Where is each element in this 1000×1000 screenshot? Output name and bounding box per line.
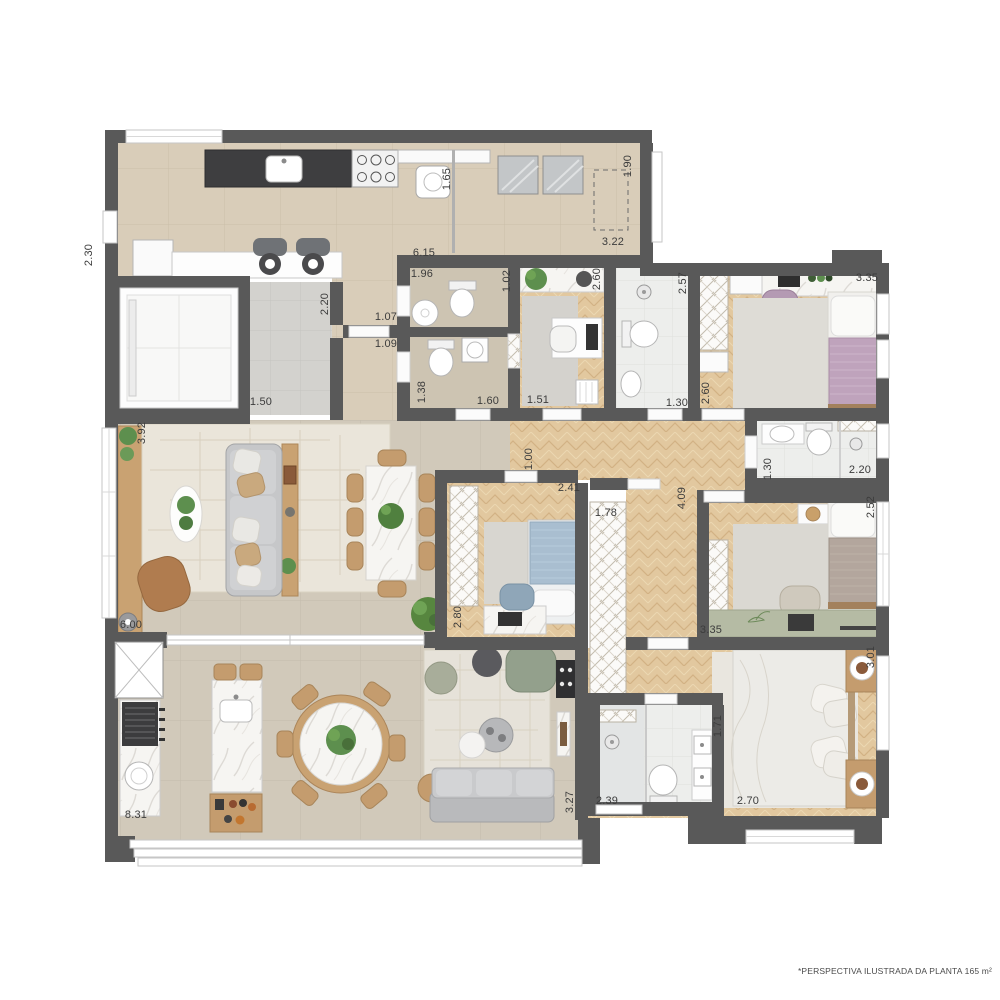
- bath-social-door: [397, 352, 410, 382]
- dim-entry-door-a: 1.07: [375, 311, 397, 323]
- window-master-right: [877, 656, 889, 750]
- stool: [240, 664, 262, 680]
- desk-chair: [500, 584, 534, 610]
- shower-head: [850, 438, 862, 450]
- dim-bedroom-mid-door: 1.00: [523, 448, 535, 470]
- wall-master-bottom-stub: [688, 830, 746, 844]
- pouf-sage: [425, 662, 457, 694]
- bottle: [239, 799, 247, 807]
- footer-disclaimer: *PERSPECTIVA ILUSTRADA DA PLANTA 165 m²: [798, 966, 992, 976]
- plant: [120, 447, 134, 461]
- plant: [179, 516, 193, 530]
- bed-footboard: [828, 602, 878, 609]
- grill-knob: [159, 718, 165, 721]
- toilet: [450, 289, 474, 317]
- oval-sink: [621, 371, 641, 397]
- faucet: [700, 775, 704, 779]
- wall-master-bottom: [688, 816, 882, 830]
- wall-bedmid-left: [435, 483, 447, 650]
- dim-laundry-depth: 1.90: [622, 155, 634, 177]
- side-table-decor: [486, 727, 494, 735]
- grill-knob: [159, 708, 165, 711]
- plant-leaf: [413, 601, 427, 615]
- sofa-cushion: [436, 770, 472, 796]
- fireplace-knob: [568, 682, 572, 686]
- dim-bedroom-mid-width: 2.41: [558, 482, 580, 494]
- dim-kitchen-partition: 1.65: [441, 168, 453, 190]
- elevator-door: [129, 300, 136, 396]
- faucet: [700, 743, 704, 747]
- wall-corridor-stub: [590, 478, 628, 490]
- dim-bath-office-width: 1.30: [666, 397, 688, 409]
- wall-bedroom2-left: [697, 503, 709, 637]
- master-door: [648, 638, 688, 649]
- firewood: [560, 722, 567, 746]
- fireplace-knob: [560, 682, 564, 686]
- fireplace-knob: [568, 668, 572, 672]
- wall-foyer-left-b: [330, 338, 343, 420]
- laptop: [586, 324, 598, 350]
- decor-bowl: [576, 271, 592, 287]
- side-table-white: [459, 732, 485, 758]
- corridor-wardrobe: [590, 502, 626, 705]
- kitchen-laundry-partition: [452, 150, 455, 253]
- dim-bedroom1-depth: 2.60: [700, 382, 712, 404]
- corridor-opening: [628, 479, 660, 489]
- double-bed: [733, 650, 853, 806]
- books: [576, 380, 598, 404]
- bottle: [236, 816, 245, 825]
- side-table-decor: [498, 734, 506, 742]
- book-row: [840, 626, 878, 630]
- office-door: [543, 409, 581, 420]
- dim-tv-room-depth: 3.27: [564, 791, 576, 813]
- dim-living-left-depth: 3.92: [136, 422, 148, 444]
- plant: [177, 496, 195, 514]
- grill-knob: [159, 738, 165, 741]
- window-bedroom1-a: [877, 294, 889, 334]
- faucet: [234, 695, 239, 700]
- bottle-box: [215, 799, 224, 810]
- kitchen-faucet: [282, 159, 287, 164]
- dim-office-depth: 2.60: [591, 268, 603, 290]
- plant-leaf: [342, 738, 354, 750]
- dim-master-width: 2.70: [737, 795, 759, 807]
- dim-bath-social-width: 1.60: [477, 395, 499, 407]
- dim-bath-bedroom1-depth: 2.20: [849, 464, 871, 476]
- blue-blanket: [530, 522, 578, 584]
- lamp-base: [856, 778, 868, 790]
- dim-bath-social-depth: 1.38: [416, 381, 428, 403]
- dim-entry-door-b: 1.09: [375, 338, 397, 350]
- window-bedroom1-b: [877, 340, 889, 378]
- wall-laundry-right: [640, 143, 653, 263]
- dim-kitchen-width: 6.15: [413, 247, 435, 259]
- bottle: [224, 815, 232, 823]
- wall-living-terrace-pillar: [424, 632, 447, 648]
- wardrobe: [697, 272, 728, 350]
- round-sink: [125, 762, 153, 790]
- bedroom-mid-door: [505, 471, 537, 482]
- laptop: [498, 612, 522, 626]
- wall-office-bath-div: [604, 263, 616, 420]
- floor-plan-drawing: [0, 0, 1000, 1000]
- plant-leaf: [381, 505, 391, 515]
- sofa-cushion: [476, 770, 512, 796]
- dim-bath-office-depth: 2.57: [677, 272, 689, 294]
- fireplace-knob: [560, 668, 564, 672]
- toilet: [807, 429, 831, 455]
- bedroom2-door: [704, 491, 744, 502]
- grill: [122, 702, 158, 746]
- wall-top-right-step: [832, 250, 882, 264]
- kitchen-cabinet: [133, 240, 173, 276]
- office-chair: [550, 326, 576, 352]
- terrace-edge-step: [130, 840, 582, 848]
- entry-door: [349, 326, 389, 337]
- art-frame: [284, 466, 296, 484]
- dim-bath-bedroom1-width: 1.30: [762, 458, 774, 480]
- window-kitchen-left: [103, 211, 117, 243]
- floor-plan-page: 2.30 1.65 6.15 1.90 3.22 2.20 1.07 1.09 …: [0, 0, 1000, 1000]
- dim-bedroom-mid-depth: 2.80: [452, 606, 464, 628]
- plate: [308, 259, 318, 269]
- armchair-green: [506, 646, 556, 692]
- dim-bedroom1-width: 3.35: [856, 272, 878, 284]
- plant-leaf: [526, 270, 536, 280]
- plant-centerpiece: [378, 503, 404, 529]
- fireplace-panel: [556, 660, 576, 698]
- window-laundry-right: [652, 152, 662, 242]
- throw-pillow: [231, 516, 261, 544]
- terrace-edge-step: [134, 849, 582, 857]
- decor-bowl: [285, 507, 295, 517]
- laptop: [788, 614, 814, 631]
- shower-head-center: [610, 740, 614, 744]
- sink: [467, 342, 483, 358]
- wall-master-bottom-stub: [854, 830, 882, 844]
- bedroom1-door: [702, 409, 744, 420]
- dim-living-width: 6.00: [120, 619, 142, 631]
- toilet: [630, 321, 658, 347]
- wall-lavabo-bath-div: [397, 327, 520, 337]
- bath-office-door: [648, 409, 682, 420]
- dim-corridor-length: 4.09: [676, 487, 688, 509]
- dim-elevator-hall-width: 1.50: [250, 396, 272, 408]
- wall-foyer-left-a: [330, 282, 343, 325]
- bath-glass-door: [508, 334, 520, 368]
- bath-master-door: [645, 694, 677, 704]
- pillow: [831, 296, 875, 336]
- bottle: [229, 800, 237, 808]
- island-sink: [220, 700, 252, 722]
- wall-bedmid-bottom: [435, 637, 578, 650]
- wardrobe: [450, 486, 478, 606]
- toilet: [429, 348, 453, 376]
- sofa-cushion: [516, 770, 552, 796]
- plate: [265, 259, 275, 269]
- plant: [119, 427, 137, 445]
- shower-head-center: [642, 290, 646, 294]
- bottle: [248, 803, 256, 811]
- dim-kitchen-left-depth: 2.30: [83, 244, 95, 266]
- dim-laundry-width: 3.22: [602, 236, 624, 248]
- kitchen-shelf: [398, 150, 490, 163]
- purple-blanket: [829, 338, 877, 406]
- window-bathb1: [877, 424, 889, 458]
- lamp: [806, 507, 820, 521]
- throw-pillow: [232, 448, 262, 477]
- rug: [733, 298, 833, 408]
- lavabo-door: [397, 286, 410, 316]
- dim-lavabo-depth: 1.02: [501, 270, 513, 292]
- throw-pillow: [236, 564, 263, 587]
- dim-master-depth: 3.01: [865, 646, 877, 668]
- dim-office-width: 1.51: [527, 394, 549, 406]
- dresser: [698, 352, 728, 372]
- wall-bedroom1-left: [688, 276, 700, 421]
- dim-terrace-width: 8.31: [125, 809, 147, 821]
- toilet: [649, 765, 677, 795]
- pouf-dark: [472, 647, 502, 677]
- dim-bedroom2-depth: 2.52: [865, 496, 877, 518]
- dim-bath-master-width: 2.39: [596, 795, 618, 807]
- oval-sink: [770, 426, 794, 442]
- dim-bedroom2-width: 3.35: [700, 624, 722, 636]
- plant-leaf: [328, 729, 340, 741]
- master-furniture: [712, 644, 878, 808]
- wall-corridor-tv: [575, 483, 588, 820]
- dim-corridor-wardrobe: 1.78: [595, 507, 617, 519]
- dim-elevator-hall-depth: 2.20: [319, 293, 331, 315]
- terrace-edge-step: [138, 858, 582, 866]
- dim-lavabo-width: 1.96: [411, 268, 433, 280]
- dim-bath-master-depth: 1.71: [712, 715, 724, 737]
- round-sink: [412, 300, 438, 326]
- bath-social-door2: [456, 409, 490, 420]
- grill-knob: [159, 728, 165, 731]
- bath-bedroom1-door: [745, 436, 757, 468]
- stool: [214, 664, 236, 680]
